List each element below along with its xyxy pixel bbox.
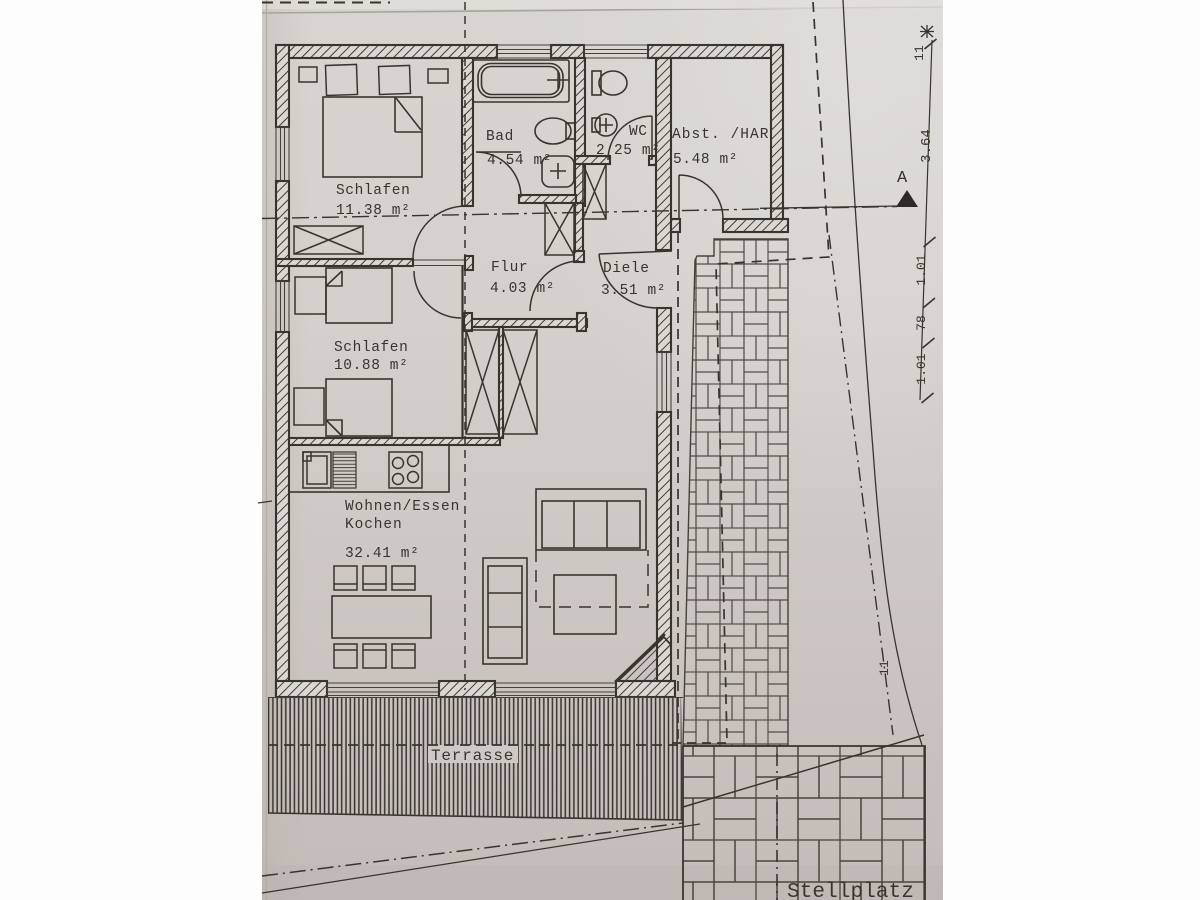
svg-text:Kochen: Kochen (345, 517, 403, 533)
svg-text:1.01: 1.01 (914, 353, 929, 384)
svg-text:11: 11 (912, 45, 927, 61)
svg-text:32.41 m²: 32.41 m² (345, 546, 419, 562)
svg-text:2: 2 (596, 143, 605, 159)
svg-text:Bad: Bad (486, 129, 514, 145)
svg-text:Schlafen: Schlafen (336, 183, 410, 199)
svg-text:Stellplatz: Stellplatz (787, 881, 914, 900)
svg-text:Schlafen: Schlafen (334, 340, 408, 356)
svg-text:25 m²: 25 m² (614, 143, 661, 159)
svg-text:78: 78 (914, 315, 929, 331)
svg-text:11: 11 (877, 660, 892, 676)
svg-text:4.03 m²: 4.03 m² (490, 281, 555, 297)
svg-text:Diele: Diele (603, 261, 650, 277)
svg-text:11.38 m²: 11.38 m² (336, 203, 410, 219)
svg-text:10.88 m²: 10.88 m² (334, 358, 408, 374)
svg-text:1.01: 1.01 (914, 254, 929, 285)
svg-text:Abst. /HAR: Abst. /HAR (672, 127, 770, 143)
svg-text:WC: WC (629, 124, 648, 140)
svg-text:5.48 m²: 5.48 m² (673, 152, 738, 168)
svg-text:4.54 m²: 4.54 m² (487, 153, 552, 169)
svg-text:Flur: Flur (491, 260, 528, 276)
svg-text:Wohnen/Essen: Wohnen/Essen (345, 499, 460, 515)
svg-text:3.51 m²: 3.51 m² (601, 283, 666, 299)
svg-text:A: A (897, 169, 908, 188)
svg-text:3.64: 3.64 (919, 129, 935, 163)
svg-text:Terrasse: Terrasse (431, 747, 514, 765)
